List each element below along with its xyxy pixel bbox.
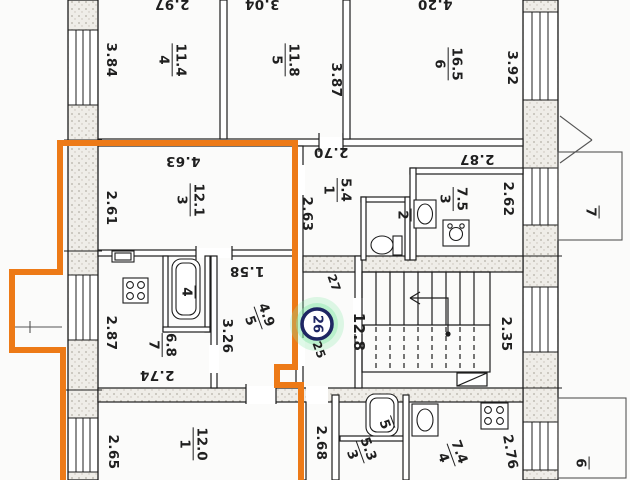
dim-label: 3.26 — [219, 319, 235, 354]
room-label-2-wc: 2 — [395, 209, 412, 222]
dim-label: 2.87 — [460, 151, 495, 167]
floorplan-drawing — [0, 0, 630, 480]
stairwell-area-label: 12.8 — [350, 313, 368, 352]
dim-label: 2.63 — [299, 197, 315, 232]
dim-label: 3.87 — [328, 63, 344, 98]
room-label-4-bath: 4 — [179, 286, 196, 299]
floorplan: 2.97 3.04 4.20 3.84 3.87 3.92 4.63 2.61 … — [0, 0, 630, 480]
dim-label: 2.62 — [500, 182, 516, 217]
dim-label: 2.97 — [155, 0, 190, 12]
dim-label: 2.61 — [103, 191, 119, 226]
dim-label: 2.74 — [140, 367, 175, 383]
room-label-1-hall: 5.41 — [321, 178, 352, 202]
dim-label: 3.84 — [103, 43, 119, 78]
dim-label: 3.92 — [504, 51, 520, 86]
apartment-number-26-selected[interactable]: 26 — [310, 315, 325, 333]
toilet-icon — [371, 236, 402, 255]
stove-icon — [123, 278, 148, 303]
room-label-7-kitchen: 6.87 — [146, 333, 177, 357]
dim-label: 2.87 — [103, 316, 119, 351]
room-label-6-top: 16.56 — [432, 47, 463, 80]
stair-panel — [457, 373, 487, 386]
room-label-4-top: 11.44 — [156, 43, 187, 76]
room-label-5-top: 11.85 — [269, 43, 300, 76]
washbasin-icon — [414, 200, 436, 228]
sink2-icon — [412, 404, 438, 436]
sink-icon — [112, 251, 134, 262]
room-label-3-living: 12.13 — [174, 183, 205, 216]
staircase-group — [362, 272, 490, 386]
stove2-icon — [481, 403, 508, 429]
dim-label: 4.20 — [418, 0, 453, 12]
room-label-3-bath: 7.53 — [437, 187, 468, 211]
balcony-7-label: 7 — [583, 206, 600, 219]
dim-label: 3.04 — [245, 0, 280, 12]
dim-label: 2.70 — [314, 144, 349, 160]
stair-direction-arrow — [410, 292, 450, 336]
dim-label: 2.35 — [498, 317, 514, 352]
water-heater-icon — [443, 220, 469, 246]
dim-label: 4.63 — [166, 153, 201, 169]
balcony-6-label: 6 — [573, 457, 590, 470]
dim-label: 2.65 — [105, 435, 121, 470]
room-label-1-bottom: 12.01 — [177, 427, 208, 460]
dim-label: 1.58 — [230, 263, 265, 279]
dim-label: 2.68 — [313, 426, 329, 461]
